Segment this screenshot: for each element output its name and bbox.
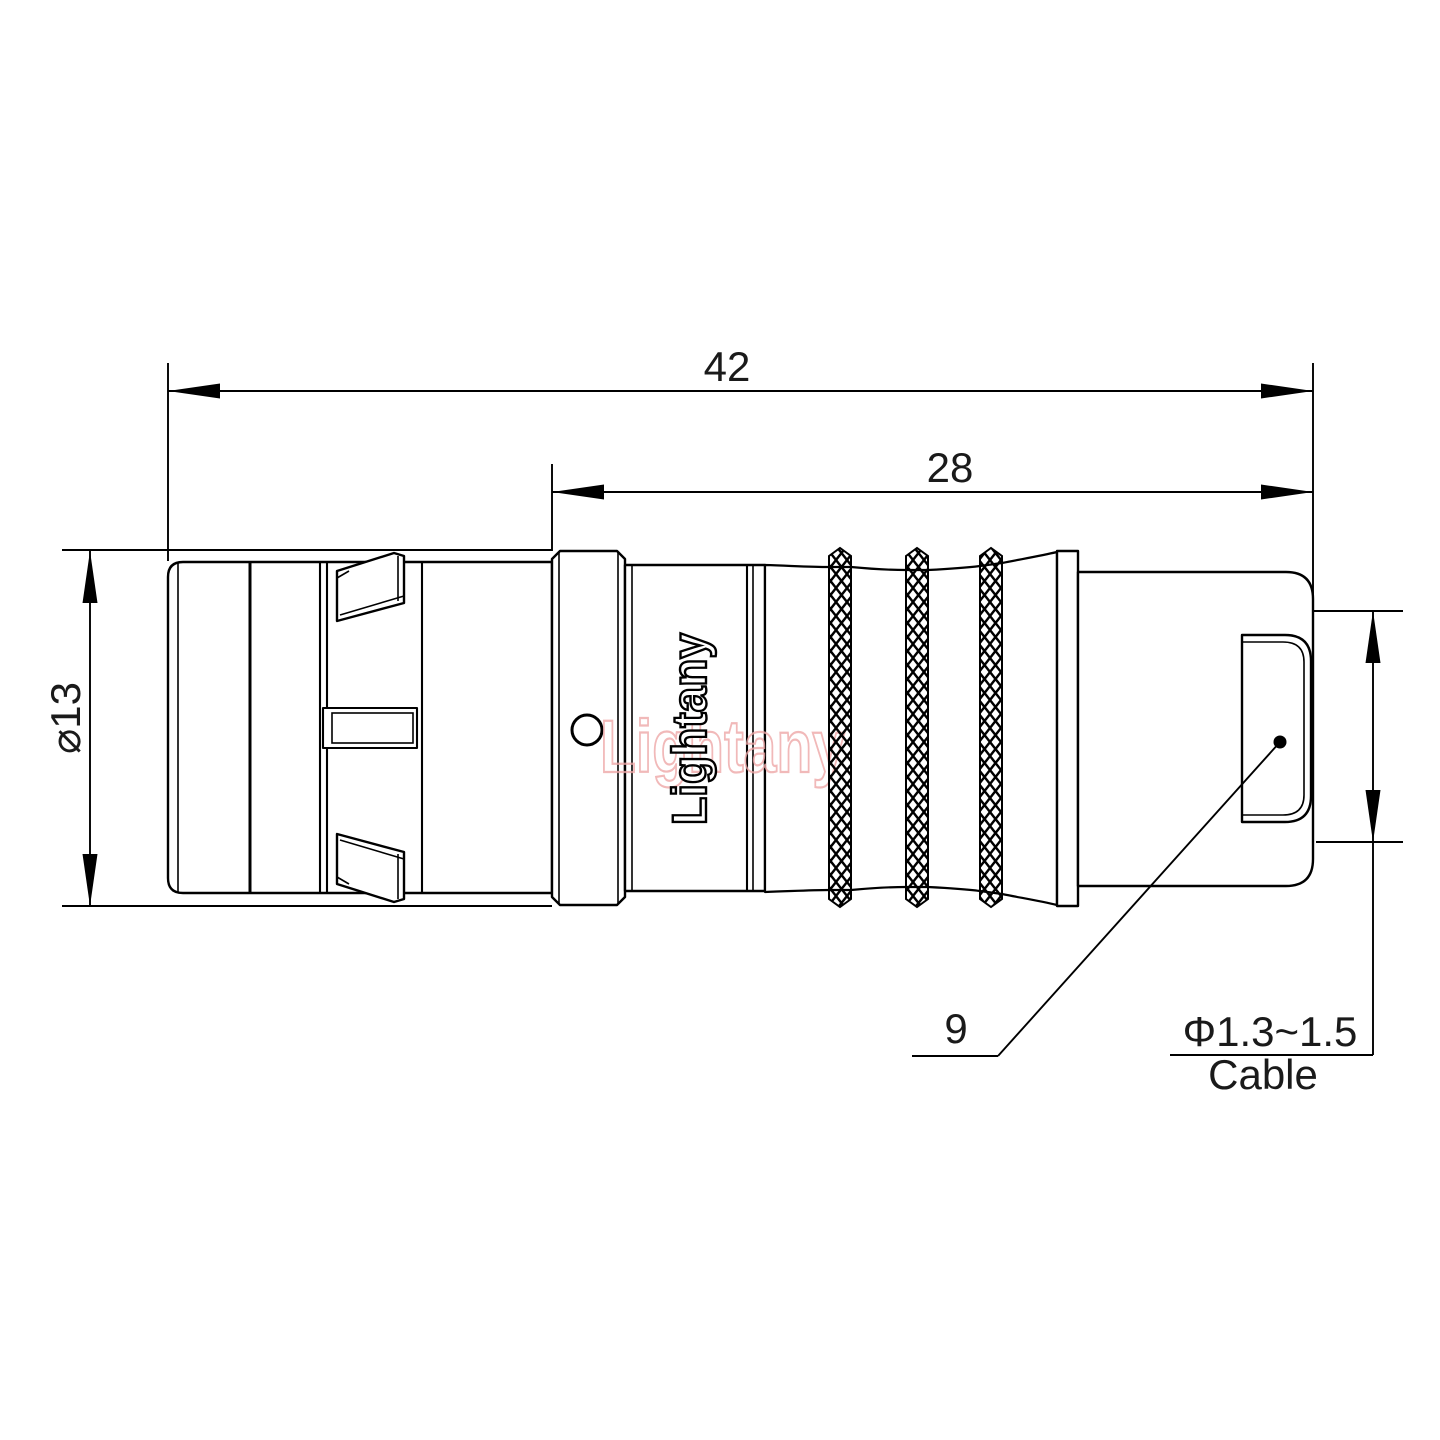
dim-diameter: ⌀13 [42,551,98,906]
knurl-band-3 [980,548,1002,907]
watermark: Lightany [600,705,845,788]
brand-logo-vertical: Lightany [664,633,717,825]
cable-label-text: Cable [1208,1051,1318,1098]
dim-rear-length-text: 28 [927,444,974,491]
connector-technical-drawing: Lightany Lightany [0,0,1440,1440]
knurl-band-1 [829,548,851,907]
dim-rear-length: 28 [552,444,1313,500]
dim-overall-length: 42 [168,343,1313,399]
cable-boss [1242,635,1311,822]
dim-diameter-text: ⌀13 [42,682,89,754]
knurl-band-2 [906,548,928,907]
connector-size-text: 9 [944,1005,967,1052]
dim-overall-length-text: 42 [704,343,751,390]
cable-diameter-text: Φ1.3~1.5 [1183,1008,1358,1055]
latch-slot [323,708,417,748]
technical-drawing-page: Lightany Lightany [0,0,1440,1440]
end-cap [1078,572,1313,886]
flange-ring [1057,551,1078,906]
collar-hole [572,715,602,745]
